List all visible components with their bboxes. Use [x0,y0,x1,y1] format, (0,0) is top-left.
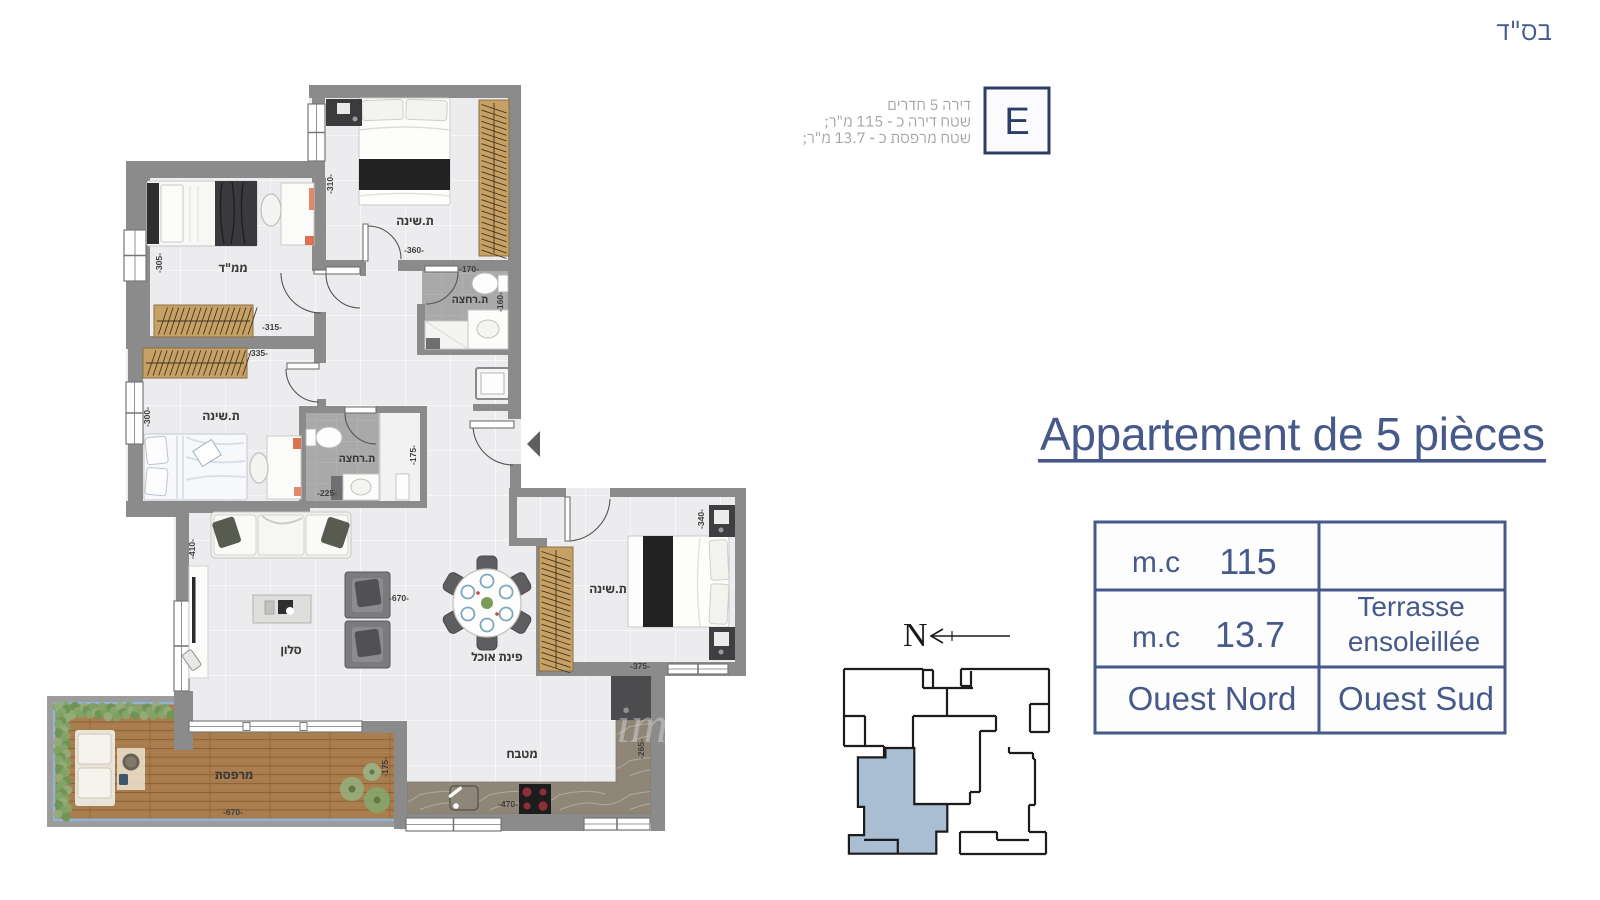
svg-text:-360-: -360- [404,245,424,255]
svg-text:Terrasse: Terrasse [1357,591,1464,622]
svg-text:-335-: -335- [248,348,268,358]
svg-text:-175-: -175- [380,757,390,777]
svg-text:-410-: -410- [187,539,197,559]
svg-text:-340-: -340- [696,509,706,529]
svg-text:-315-: -315- [262,322,282,332]
svg-text:E: E [1004,101,1029,143]
svg-text:-670-: -670- [223,807,243,817]
svg-text:-160-: -160- [495,292,505,312]
svg-text:N: N [903,617,928,654]
svg-text:-670-: -670- [389,593,409,603]
svg-text:13.7: 13.7 [1215,614,1285,655]
svg-text:-170-: -170- [459,264,479,274]
svg-text:m.c: m.c [1132,546,1180,579]
svg-text:m.c: m.c [1132,621,1180,654]
svg-text:Ouest Sud: Ouest Sud [1338,680,1494,717]
svg-text:-300-: -300- [142,407,152,427]
svg-text:im: im [616,697,668,754]
svg-text:-375-: -375- [630,661,650,671]
svg-text:-310-: -310- [325,174,335,194]
svg-text:115: 115 [1219,541,1276,582]
svg-text:-305-: -305- [154,253,164,273]
svg-text:-225-: -225- [317,488,337,498]
svg-text:Ouest Nord: Ouest Nord [1128,680,1297,717]
svg-text:-175-: -175- [408,445,418,465]
svg-text:-470-: -470- [498,799,518,809]
svg-text:Appartement de 5 pièces: Appartement de 5 pièces [1040,408,1545,460]
svg-text:ensoleillée: ensoleillée [1348,626,1480,657]
